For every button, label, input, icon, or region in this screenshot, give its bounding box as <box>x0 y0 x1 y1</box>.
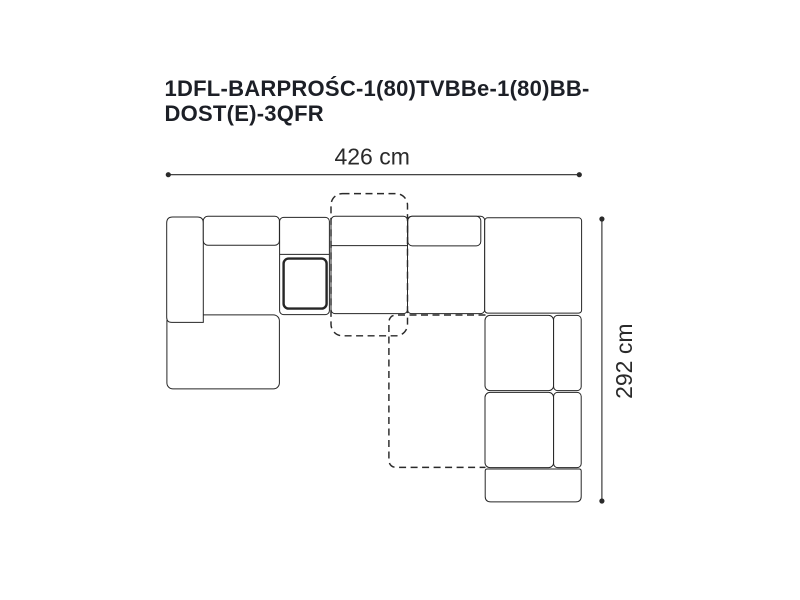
svg-text:292 cm: 292 cm <box>611 323 637 398</box>
svg-text:426 cm: 426 cm <box>334 143 409 169</box>
